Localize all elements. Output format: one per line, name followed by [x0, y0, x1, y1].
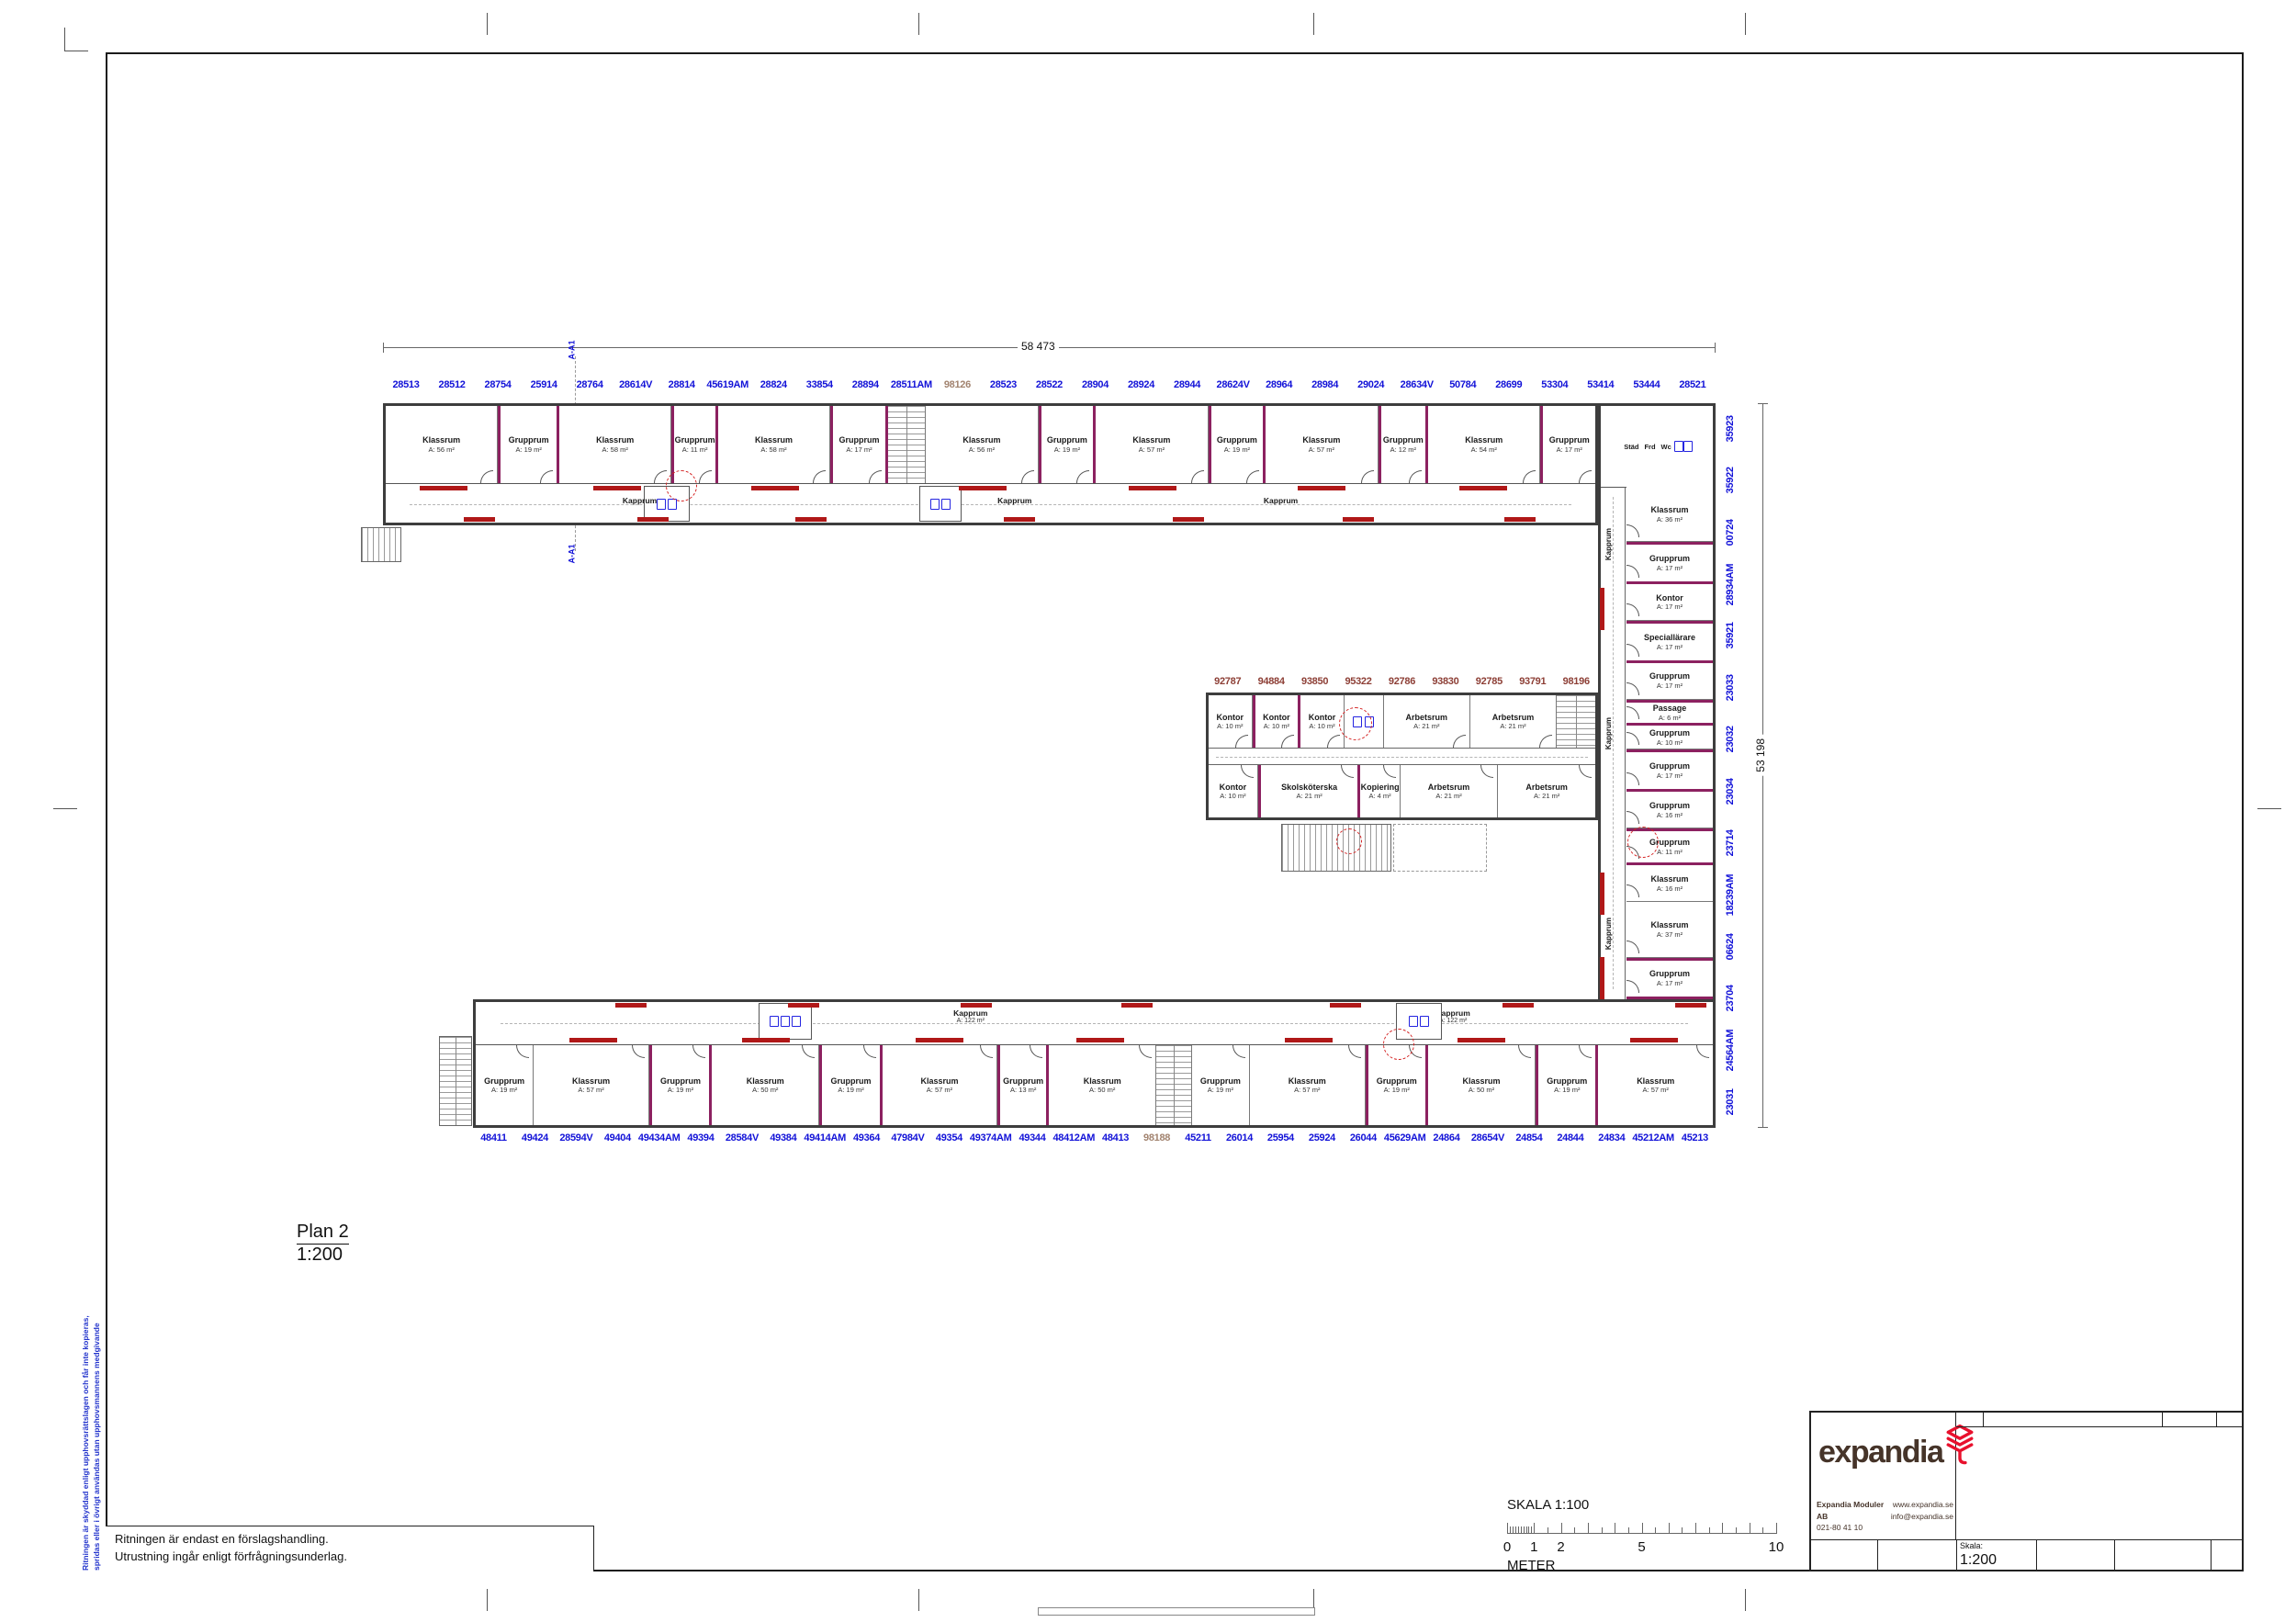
scale-tick	[1669, 1523, 1670, 1534]
room-name: Kontor	[1217, 713, 1244, 723]
module-number: 48411	[473, 1132, 514, 1147]
door-arc	[1579, 470, 1592, 483]
room-area: A: 56 m²	[422, 445, 460, 454]
door-arc	[1246, 470, 1259, 483]
room-name: Klassrum	[572, 1076, 610, 1087]
module-number: 25954	[1260, 1132, 1301, 1147]
wc-pod	[759, 1003, 812, 1040]
module-number: 98126	[934, 379, 980, 394]
trim-mark	[487, 1589, 488, 1611]
corridor-label: Kapprum	[1264, 496, 1298, 505]
scale-tick	[1615, 1523, 1615, 1534]
room: GrupprumA: 17 m²	[1626, 663, 1713, 700]
right-wing-corridor: Kapprum Kapprum Kapprum	[1601, 487, 1626, 999]
corridor-bench	[1504, 517, 1536, 522]
room-label: KlassrumA: 57 m²	[572, 1076, 610, 1095]
room-area: A: 58 m²	[596, 445, 634, 454]
module-number: 49434AM	[638, 1132, 681, 1147]
room-name: Grupprum	[1003, 1076, 1043, 1087]
room-label: GrupprumA: 19 m²	[831, 1076, 872, 1095]
module-number: 28699	[1486, 379, 1532, 394]
room-name: Klassrum	[1289, 1076, 1326, 1087]
door-arc	[1191, 470, 1204, 483]
room-label: GrupprumA: 17 m²	[839, 435, 880, 454]
scale-tick	[1628, 1527, 1629, 1534]
corridor-dash-line	[501, 1023, 1688, 1024]
corridor-bench	[1630, 1038, 1678, 1042]
room: GrupprumA: 17 m²	[1626, 749, 1713, 791]
room: SkolsköterskaA: 21 m²	[1258, 765, 1361, 817]
room: GrupprumA: 19 m²	[819, 1045, 882, 1125]
note-line2: Utrustning ingår enligt förfrågningsunde…	[115, 1549, 593, 1566]
door-arc	[1696, 1045, 1709, 1058]
room: KlassrumA: 56 m²	[926, 406, 1038, 483]
title-block-line	[2216, 1413, 2217, 1426]
corridor-bench	[637, 517, 669, 522]
corridor-bench	[916, 1038, 963, 1042]
room-label: PassageA: 6 m²	[1653, 704, 1687, 722]
room-name: Grupprum	[839, 435, 880, 445]
room-name: Kopiering	[1361, 783, 1400, 793]
door-arc	[1281, 735, 1294, 748]
room: KontorA: 10 m²	[1209, 765, 1258, 817]
room: ArbetsrumA: 21 m²	[1401, 765, 1499, 817]
trim-mark	[64, 28, 65, 51]
external-stair	[1281, 824, 1391, 872]
room-area: A: 57 m²	[1132, 445, 1170, 454]
scale-tick	[1531, 1526, 1532, 1534]
module-number: 49384	[762, 1132, 804, 1147]
room-name: Grupprum	[1649, 761, 1690, 772]
sink-icon	[792, 1016, 801, 1027]
module-number: 23034	[1722, 766, 1739, 817]
module-number: 49394	[680, 1132, 721, 1147]
room-name: Grupprum	[1047, 435, 1087, 445]
room-label: GrupprumA: 17 m²	[1649, 969, 1690, 987]
room-name: Grupprum	[1377, 1076, 1417, 1087]
room-label: KlassrumA: 57 m²	[920, 1076, 958, 1095]
section-label-bottom: A-A1	[568, 544, 577, 563]
scale-bar-unit: METER	[1507, 1558, 1556, 1573]
room: KontorA: 10 m²	[1209, 695, 1253, 748]
room-label: KlassrumA: 50 m²	[1462, 1076, 1500, 1095]
trim-mark	[918, 13, 919, 35]
room: GrupprumA: 19 m²	[1536, 1045, 1598, 1125]
scale-tick	[1507, 1523, 1508, 1534]
module-number: 28934AM	[1722, 558, 1739, 610]
dimension-tick	[383, 343, 384, 353]
company-logo: expandia	[1818, 1436, 1975, 1468]
room-area: A: 6 m²	[1653, 714, 1687, 722]
room-label: KlassrumA: 16 m²	[1650, 874, 1688, 893]
room-label: KontorA: 10 m²	[1217, 713, 1244, 731]
room: SpeciallärareA: 17 m²	[1626, 621, 1713, 662]
room: GrupprumA: 16 m²	[1626, 792, 1713, 828]
door-arc	[1383, 765, 1396, 778]
sink-icon	[1683, 441, 1693, 452]
module-number: 29024	[1348, 379, 1394, 394]
door-arc	[1626, 884, 1639, 897]
module-number: 47984V	[887, 1132, 929, 1147]
room-name: Skolsköterska	[1281, 783, 1337, 793]
module-number: 25914	[521, 379, 567, 394]
room-name: Klassrum	[755, 435, 793, 445]
module-number: 24864	[1425, 1132, 1467, 1147]
module-number: 92787	[1206, 676, 1249, 690]
room-label: SpeciallärareA: 17 m²	[1644, 633, 1695, 651]
door-arc	[1626, 565, 1639, 578]
door-arc	[869, 470, 882, 483]
room-label: GrupprumA: 10 m²	[1649, 728, 1690, 747]
plan-scale: 1:200	[297, 1245, 349, 1266]
module-number: 28513	[383, 379, 429, 394]
door-arc	[1579, 1045, 1592, 1058]
room-area: A: 50 m²	[1462, 1086, 1500, 1094]
room-name: Arbetsrum	[1492, 713, 1535, 723]
door-arc	[1626, 772, 1639, 785]
room-area: A: 21 m²	[1406, 722, 1448, 730]
room-label: KlassrumA: 57 m²	[1302, 435, 1340, 454]
room-area: A: 57 m²	[572, 1086, 610, 1094]
dimension-value-right: 53 198	[1754, 735, 1767, 776]
scale-number: 10	[1769, 1539, 1784, 1555]
room-area: A: 10 m²	[1649, 738, 1690, 747]
corridor-label: Kapprum A: 122 m²	[953, 1008, 987, 1026]
room: KlassrumA: 50 m²	[1049, 1045, 1156, 1125]
copyright-note-line1: Ritningen är skyddad enligt upphovsrätts…	[81, 1300, 90, 1571]
room-name: Klassrum	[422, 435, 460, 445]
module-number: 28523	[980, 379, 1026, 394]
room: GrupprumA: 19 m²	[1209, 406, 1266, 483]
room-label: KlassrumA: 50 m²	[747, 1076, 784, 1095]
room-name: Klassrum	[962, 435, 1000, 445]
room-name: Grupprum	[675, 435, 715, 445]
external-stair	[439, 1036, 472, 1126]
corridor-bench	[961, 1003, 992, 1008]
room: GrupprumA: 17 m²	[1540, 406, 1595, 483]
corridor-label: Kapprum	[1604, 528, 1613, 560]
door-arc	[1626, 811, 1639, 824]
trim-mark	[918, 1589, 919, 1611]
toilet-icon	[770, 1016, 779, 1027]
room-area: A: 19 m²	[831, 1086, 872, 1094]
room-name: Kapprum	[997, 496, 1031, 505]
room: KlassrumA: 37 m²	[1626, 902, 1713, 957]
room: GrupprumA: 10 m²	[1626, 726, 1713, 750]
room-area: A: 17 m²	[1649, 979, 1690, 987]
corridor-bench	[593, 486, 641, 490]
scale-bar-ruler	[1507, 1523, 1776, 1536]
fold-mark	[1038, 1607, 1315, 1616]
logo-wordmark: expandia	[1818, 1436, 1942, 1468]
trim-mark	[1745, 13, 1746, 35]
room-name: Frd	[1644, 443, 1655, 451]
door-arc	[1076, 470, 1089, 483]
module-number: 45619AM	[704, 379, 750, 394]
dimension-tick	[1715, 343, 1716, 353]
room: KopieringA: 4 m²	[1360, 765, 1400, 817]
corridor-label: Kapprum	[997, 496, 1031, 505]
door-arc	[1626, 941, 1639, 953]
room-area: A: 19 m²	[1377, 1086, 1417, 1094]
room-area: A: 17 m²	[839, 445, 880, 454]
accessibility-circle-marker	[666, 470, 697, 501]
module-number: 26014	[1219, 1132, 1260, 1147]
title-block-line	[1877, 1539, 1878, 1570]
room-area: A: 17 m²	[1549, 445, 1590, 454]
module-number: 33854	[796, 379, 842, 394]
corridor-bench	[1503, 1003, 1534, 1008]
title-block-line	[2211, 1539, 2212, 1570]
room: KlassrumA: 57 m²	[1250, 1045, 1366, 1125]
module-number: 24854	[1508, 1132, 1549, 1147]
room-name: Grupprum	[1649, 728, 1690, 738]
room-label: GrupprumA: 19 m²	[1547, 1076, 1587, 1095]
plan-name: Plan 2	[297, 1222, 349, 1245]
module-number: 45211	[1177, 1132, 1219, 1147]
room: GrupprumA: 17 m²	[1626, 542, 1713, 583]
door-arc	[1626, 682, 1639, 695]
module-number: 23704	[1722, 973, 1739, 1024]
corridor-bench	[788, 1003, 819, 1008]
room-area: A: 4 m²	[1361, 792, 1400, 800]
room-area: A: 19 m²	[509, 445, 549, 454]
corridor-label: Kapprum	[1604, 918, 1613, 950]
drawing-frame	[106, 52, 2244, 1571]
room-area: A: 58 m²	[755, 445, 793, 454]
module-number: 92786	[1380, 676, 1424, 690]
scale-cell-value: 1:200	[1960, 1552, 2036, 1569]
door-arc	[802, 1045, 815, 1058]
scale-tick	[1524, 1526, 1525, 1534]
scale-tick	[1762, 1527, 1763, 1534]
toilet-icon	[1409, 1016, 1418, 1027]
room-area: A: 50 m²	[747, 1086, 784, 1094]
room-name: Klassrum	[1465, 435, 1503, 445]
logo-leaf-icon	[1944, 1424, 1975, 1466]
room: KlassrumA: 57 m²	[1096, 406, 1208, 483]
module-number: 24844	[1549, 1132, 1591, 1147]
room: KlassrumA: 56 m²	[386, 406, 498, 483]
room-label: GrupprumA: 19 m²	[660, 1076, 701, 1095]
notes-box: Ritningen är endast en förslagshandling.…	[106, 1526, 594, 1571]
module-number: 48412AM	[1052, 1132, 1095, 1147]
corridor-bench	[959, 486, 1007, 490]
stair-landing-outline	[1393, 824, 1487, 872]
module-number: 49424	[514, 1132, 556, 1147]
room-name: Grupprum	[1217, 435, 1257, 445]
module-number: 98188	[1136, 1132, 1177, 1147]
room-label: GrupprumA: 17 m²	[1649, 554, 1690, 572]
scale-tick	[1510, 1526, 1511, 1534]
title-block-line	[2036, 1539, 2037, 1570]
door-arc	[1626, 732, 1639, 745]
module-numbers-middle: 9278794884938509532292786938309278593791…	[1206, 676, 1598, 690]
corridor-bench	[1343, 517, 1374, 522]
room-label: KlassrumA: 36 m²	[1650, 505, 1688, 524]
room-name: Klassrum	[1084, 1076, 1121, 1087]
module-number: 28764	[567, 379, 613, 394]
dimension-tick	[1758, 403, 1768, 404]
room-area: A: 13 m²	[1003, 1086, 1043, 1094]
corridor-bench	[615, 1003, 647, 1008]
room-label: KlassrumA: 58 m²	[596, 435, 634, 454]
door-arc	[1626, 980, 1639, 993]
door-arc	[980, 1045, 993, 1058]
section-label-top: A-A1	[568, 340, 577, 359]
room: GrupprumA: 19 m²	[476, 1045, 534, 1125]
room: GrupprumA: 17 m²	[830, 406, 888, 483]
room-label: KontorA: 10 m²	[1220, 783, 1247, 801]
module-number: 92785	[1468, 676, 1511, 690]
room-name: Grupprum	[1649, 801, 1690, 811]
module-number: 93830	[1424, 676, 1467, 690]
scale-tick	[1709, 1527, 1710, 1534]
door-arc	[480, 470, 493, 483]
room-label: GrupprumA: 17 m²	[1549, 435, 1590, 454]
room-area: A: 17 m²	[1656, 603, 1683, 611]
corridor-label: Kapprum	[623, 496, 657, 505]
title-block: expandia Expandia Moduler AB 021-80 41 1…	[1809, 1411, 2244, 1571]
scale-tick	[1513, 1526, 1514, 1534]
module-number: 45212AM	[1632, 1132, 1674, 1147]
room: GrupprumA: 17 m²	[1626, 958, 1713, 999]
room: ArbetsrumA: 21 m²	[1498, 765, 1595, 817]
module-number: 35923	[1722, 403, 1739, 455]
corridor-bench	[751, 486, 799, 490]
room-name: Grupprum	[1649, 554, 1690, 564]
module-number: 53304	[1532, 379, 1578, 394]
door-arc	[1235, 735, 1248, 748]
scale-tick	[1655, 1527, 1656, 1534]
scale-tick	[1642, 1523, 1643, 1534]
room-label: KlassrumA: 54 m²	[1465, 435, 1503, 454]
trim-mark	[64, 51, 88, 51]
module-number: 95322	[1336, 676, 1379, 690]
title-block-line	[1956, 1426, 2242, 1427]
room: GrupprumA: 19 m²	[1039, 406, 1097, 483]
room-label: KlassrumA: 50 m²	[1084, 1076, 1121, 1095]
room-name: Grupprum	[1383, 435, 1424, 445]
room-name: Klassrum	[1302, 435, 1340, 445]
scale-tick	[1574, 1527, 1575, 1534]
room-area: A: 56 m²	[962, 445, 1000, 454]
door-arc	[1480, 765, 1493, 778]
corridor-bench	[795, 517, 827, 522]
corridor-label: Kapprum	[1604, 717, 1613, 749]
module-number: 35921	[1722, 610, 1739, 661]
bottom-wing-rooms: GrupprumA: 19 m²KlassrumA: 57 m²Grupprum…	[476, 1044, 1713, 1125]
room-name: Kapprum	[1264, 496, 1298, 505]
room-area: A: 50 m²	[1084, 1086, 1121, 1094]
room-area: A: 21 m²	[1281, 792, 1337, 800]
module-number: 28944	[1165, 379, 1210, 394]
room-label: GrupprumA: 12 m²	[1383, 435, 1424, 454]
room-name: Kapprum	[953, 1008, 987, 1018]
scale-number: 0	[1503, 1539, 1511, 1555]
right-wing-rooms: KlassrumA: 36 m²GrupprumA: 17 m²KontorA:…	[1626, 487, 1713, 999]
scale-tick	[1722, 1523, 1723, 1534]
room-area: A: 57 m²	[1289, 1086, 1326, 1094]
room-label: KontorA: 10 m²	[1309, 713, 1336, 731]
door-arc	[1579, 765, 1592, 778]
corridor-bench	[1600, 873, 1604, 915]
corridor-bench	[742, 1038, 790, 1042]
middle-wing-corridor	[1209, 749, 1595, 763]
company-website: www.expandia.se	[1891, 1499, 1953, 1511]
scale-number: 1	[1530, 1539, 1537, 1555]
room-area: A: 19 m²	[660, 1086, 701, 1094]
middle-wing-rooms-bottom: KontorA: 10 m²SkolsköterskaA: 21 m²Kopie…	[1209, 764, 1595, 817]
room: KlassrumA: 58 m²	[559, 406, 671, 483]
accessibility-circle-marker	[1383, 1029, 1414, 1060]
room: ArbetsrumA: 21 m²	[1384, 695, 1470, 748]
room-area: A: 10 m²	[1309, 722, 1336, 730]
copyright-note-line2: spridas eller i övrigt användas utan upp…	[92, 1300, 101, 1571]
module-number: 28964	[1256, 379, 1302, 394]
door-arc	[1409, 470, 1422, 483]
module-number: 23033	[1722, 662, 1739, 714]
door-arc	[1523, 470, 1536, 483]
company-contact: Expandia Moduler AB 021-80 41 10 www.exp…	[1817, 1499, 1953, 1534]
corridor-dash-line	[1216, 757, 1587, 758]
room-area: A: 21 m²	[1428, 792, 1470, 800]
module-number: 28754	[475, 379, 521, 394]
module-number: 24834	[1591, 1132, 1632, 1147]
right-wing-entry-block: Städ Frd Wc	[1601, 406, 1713, 488]
stairwell	[1156, 1045, 1191, 1125]
door-arc	[863, 1045, 876, 1058]
module-number: 26044	[1343, 1132, 1384, 1147]
module-numbers-right: 35923359220072428934AM359212303323032230…	[1722, 403, 1739, 1128]
room-name: Klassrum	[920, 1076, 958, 1087]
scale-tick	[1736, 1527, 1737, 1534]
room-name: Klassrum	[1132, 435, 1170, 445]
module-number: 93791	[1511, 676, 1554, 690]
room-name: Kapprum	[623, 496, 657, 505]
room: GrupprumA: 19 m²	[649, 1045, 712, 1125]
trim-mark	[1745, 1589, 1746, 1611]
room-label: KopieringA: 4 m²	[1361, 783, 1400, 801]
room-name: Kontor	[1656, 593, 1683, 603]
scale-cell: Skala: 1:200	[1956, 1539, 2036, 1573]
corridor-bench	[1600, 588, 1604, 630]
module-number: 28894	[842, 379, 888, 394]
corridor-bench	[1600, 957, 1604, 999]
room-area: A: 11 m²	[675, 445, 715, 454]
module-number: 28814	[658, 379, 704, 394]
module-number: 25924	[1301, 1132, 1343, 1147]
room-label: KlassrumA: 57 m²	[1289, 1076, 1326, 1095]
door-arc	[692, 1045, 705, 1058]
door-arc	[1626, 706, 1639, 719]
room-area: A: 17 m²	[1649, 564, 1690, 572]
toilet-icon	[1674, 441, 1683, 452]
drawing-sheet: { "page": { "plan_label": "Plan 2", "pla…	[0, 0, 2296, 1622]
room-label: KlassrumA: 58 m²	[755, 435, 793, 454]
room-label: KlassrumA: 57 m²	[1637, 1076, 1674, 1095]
room-area: A: 16 m²	[1650, 884, 1688, 893]
scale-tick	[1776, 1523, 1777, 1534]
module-number: 28521	[1670, 379, 1716, 394]
title-block-line	[1983, 1413, 1984, 1426]
corridor-bench	[1298, 486, 1345, 490]
module-number: 98196	[1555, 676, 1598, 690]
bottom-wing-corridor: Kapprum A: 122 m² Kapprum A: 122 m²	[476, 1002, 1713, 1043]
room-label: GrupprumA: 19 m²	[1377, 1076, 1417, 1095]
room-name: Grupprum	[831, 1076, 872, 1087]
room-area: A: 19 m²	[1200, 1086, 1241, 1094]
